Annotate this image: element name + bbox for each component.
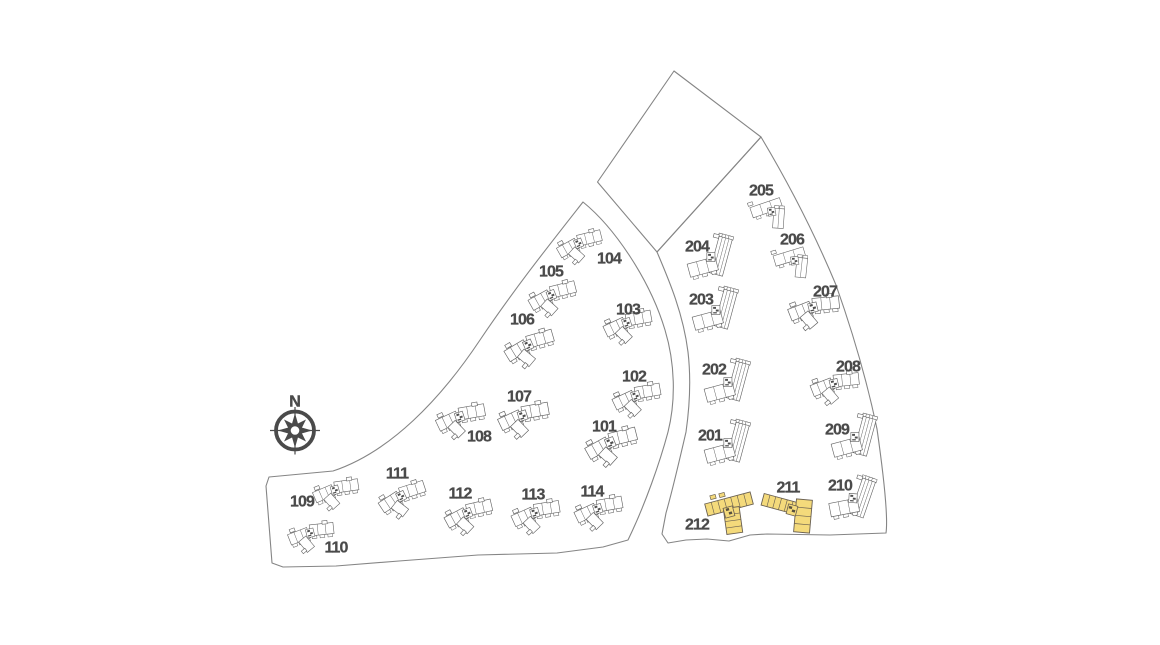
svg-text:101: 101 [592, 419, 617, 436]
svg-text:109: 109 [290, 494, 315, 511]
svg-text:114: 114 [580, 484, 604, 501]
svg-text:204: 204 [685, 239, 710, 256]
svg-text:108: 108 [467, 429, 492, 446]
svg-text:102: 102 [622, 369, 647, 386]
svg-text:209: 209 [825, 422, 850, 439]
svg-text:207: 207 [813, 284, 838, 301]
svg-text:112: 112 [448, 486, 472, 503]
svg-text:208: 208 [836, 359, 861, 376]
svg-text:103: 103 [616, 302, 641, 319]
svg-text:N: N [289, 394, 301, 411]
svg-text:105: 105 [539, 264, 564, 281]
svg-text:203: 203 [689, 292, 714, 309]
svg-text:211: 211 [776, 480, 800, 497]
svg-text:210: 210 [828, 478, 853, 495]
svg-text:111: 111 [386, 466, 409, 483]
svg-text:107: 107 [507, 389, 532, 406]
svg-text:202: 202 [702, 362, 727, 379]
svg-text:110: 110 [324, 540, 348, 557]
svg-text:212: 212 [685, 517, 710, 534]
svg-text:201: 201 [698, 428, 723, 445]
svg-text:206: 206 [780, 232, 805, 249]
svg-text:113: 113 [521, 487, 545, 504]
svg-text:205: 205 [749, 183, 774, 200]
svg-text:106: 106 [510, 312, 535, 329]
svg-text:104: 104 [597, 251, 622, 268]
